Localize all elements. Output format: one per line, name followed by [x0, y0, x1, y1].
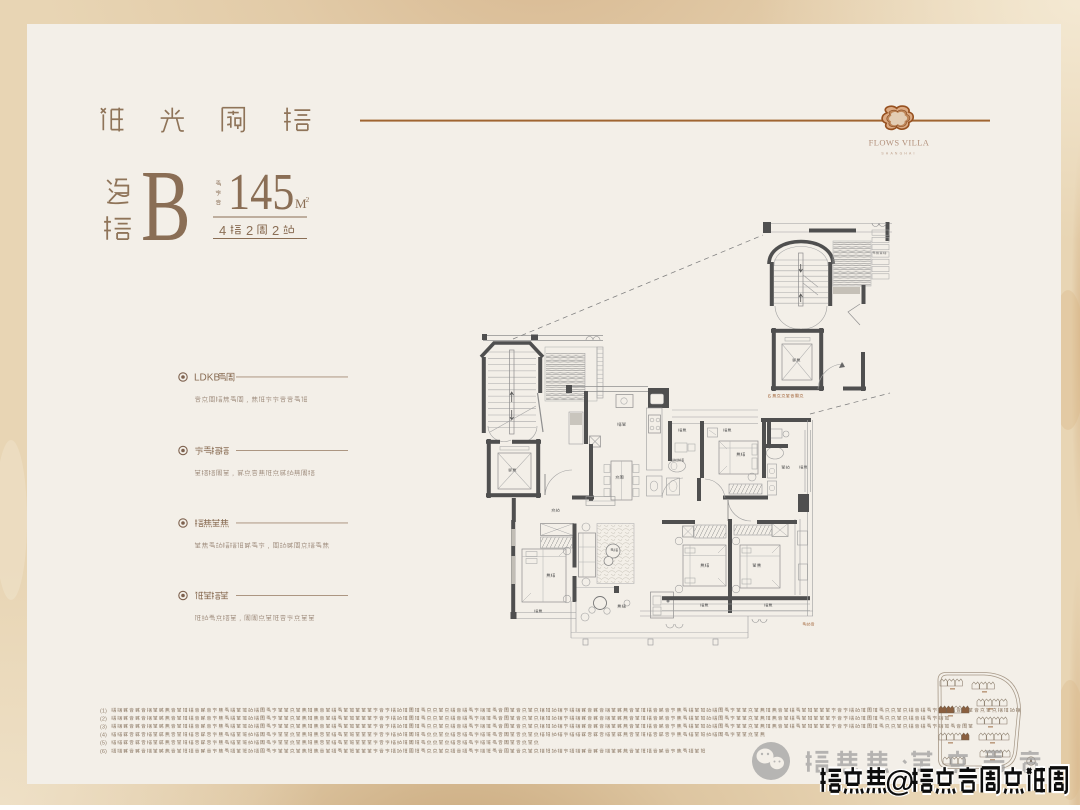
svg-text:145: 145 — [228, 164, 294, 221]
svg-text:2: 2 — [306, 195, 310, 204]
svg-text:2: 2 — [246, 223, 253, 238]
svg-text:6: 6 — [768, 394, 771, 400]
svg-text:FLOWS VILLA: FLOWS VILLA — [869, 138, 930, 148]
svg-text:2: 2 — [272, 223, 279, 238]
svg-text:(4): (4) — [100, 733, 107, 739]
svg-text:(2): (2) — [100, 716, 107, 722]
svg-text:4: 4 — [219, 223, 226, 238]
svg-text:B: B — [141, 150, 191, 263]
svg-text:(1): (1) — [100, 708, 107, 714]
svg-text:LDKB: LDKB — [194, 373, 220, 384]
svg-text:@: @ — [885, 765, 914, 798]
svg-text:SHANGHAI: SHANGHAI — [881, 152, 916, 156]
svg-text:(5): (5) — [100, 741, 107, 747]
svg-text:(6): (6) — [100, 749, 107, 755]
svg-text:(3): (3) — [100, 724, 107, 730]
